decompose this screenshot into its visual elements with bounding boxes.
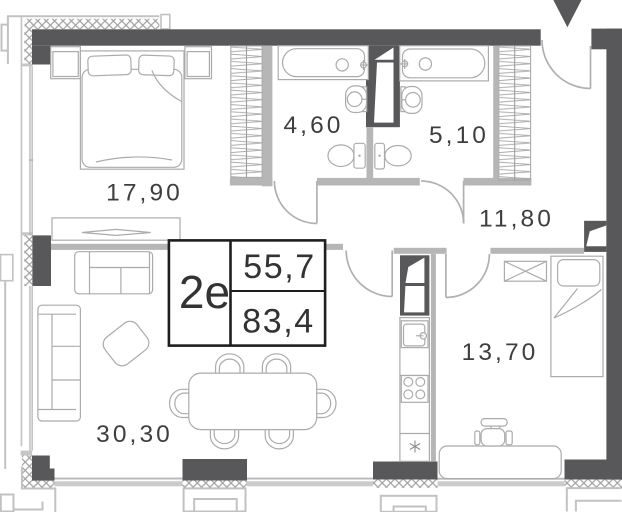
svg-text:17,90: 17,90 xyxy=(106,179,183,206)
svg-text:83,4: 83,4 xyxy=(242,303,315,341)
svg-text:30,30: 30,30 xyxy=(96,421,173,448)
svg-text:11,80: 11,80 xyxy=(479,205,554,232)
svg-text:4,60: 4,60 xyxy=(283,112,343,139)
svg-text:13,70: 13,70 xyxy=(462,339,539,366)
svg-text:55,7: 55,7 xyxy=(243,248,316,286)
svg-text:2е: 2е xyxy=(179,266,230,318)
svg-text:5,10: 5,10 xyxy=(429,122,489,149)
